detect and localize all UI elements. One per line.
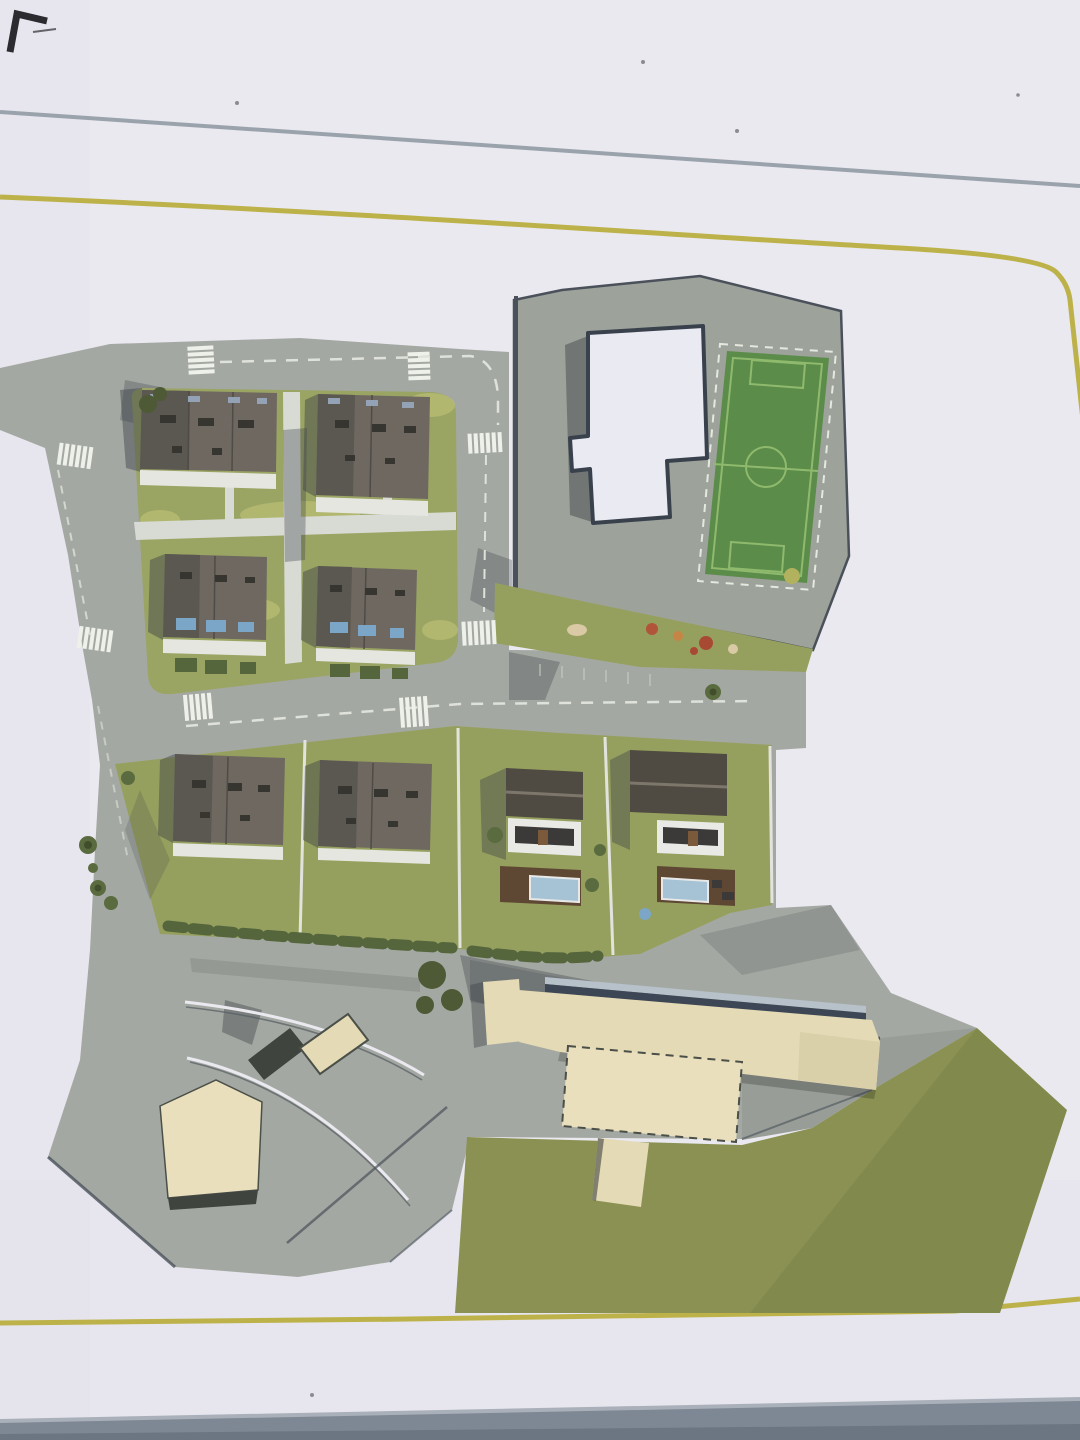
apartment-roof-dark-half [173, 754, 213, 843]
detached-house-1 [500, 768, 583, 906]
playground-item-sand [728, 644, 738, 654]
main-slab-east-shade [798, 1032, 880, 1090]
door [538, 830, 548, 845]
photo-of-site-plan-page [0, 0, 1080, 1440]
apartment-roof-dark-half [318, 760, 358, 848]
garden-pool-toy [639, 908, 651, 920]
door [688, 831, 698, 846]
site-plan-canvas [0, 0, 1080, 1440]
apartment-roof-dark-half [316, 394, 355, 496]
south-garden-row [115, 726, 772, 960]
olive-tree [784, 568, 800, 584]
swimming-pool [662, 878, 708, 902]
swimming-pool [530, 876, 579, 902]
apartment-roof-dark-half [316, 566, 352, 648]
playground-item-red [646, 623, 658, 635]
apartment-building-nw [140, 390, 277, 489]
complex-lower-slab [562, 1046, 742, 1142]
playground-item-dark [690, 647, 698, 655]
sand-patch [567, 624, 587, 636]
playground-item-orange [673, 631, 683, 641]
north-residential-block [120, 387, 458, 694]
soccer-school-block [514, 276, 849, 650]
complex-column-wing [483, 979, 523, 1045]
playground-item-rust [699, 636, 713, 650]
